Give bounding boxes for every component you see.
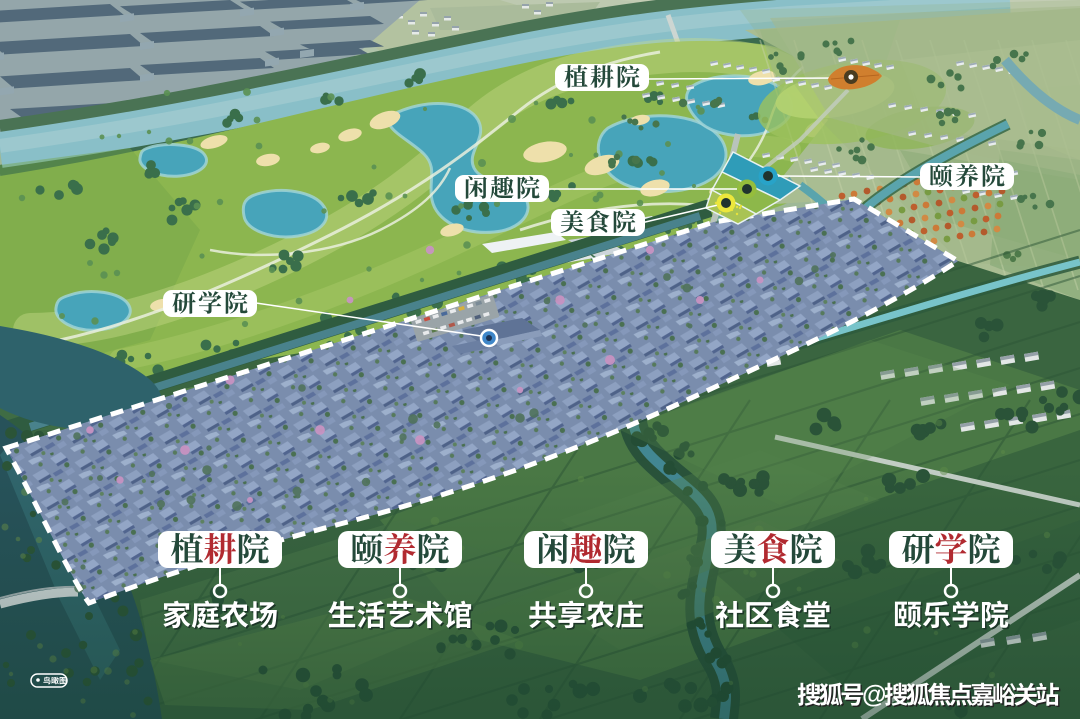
svg-text:@: @ bbox=[862, 681, 886, 709]
